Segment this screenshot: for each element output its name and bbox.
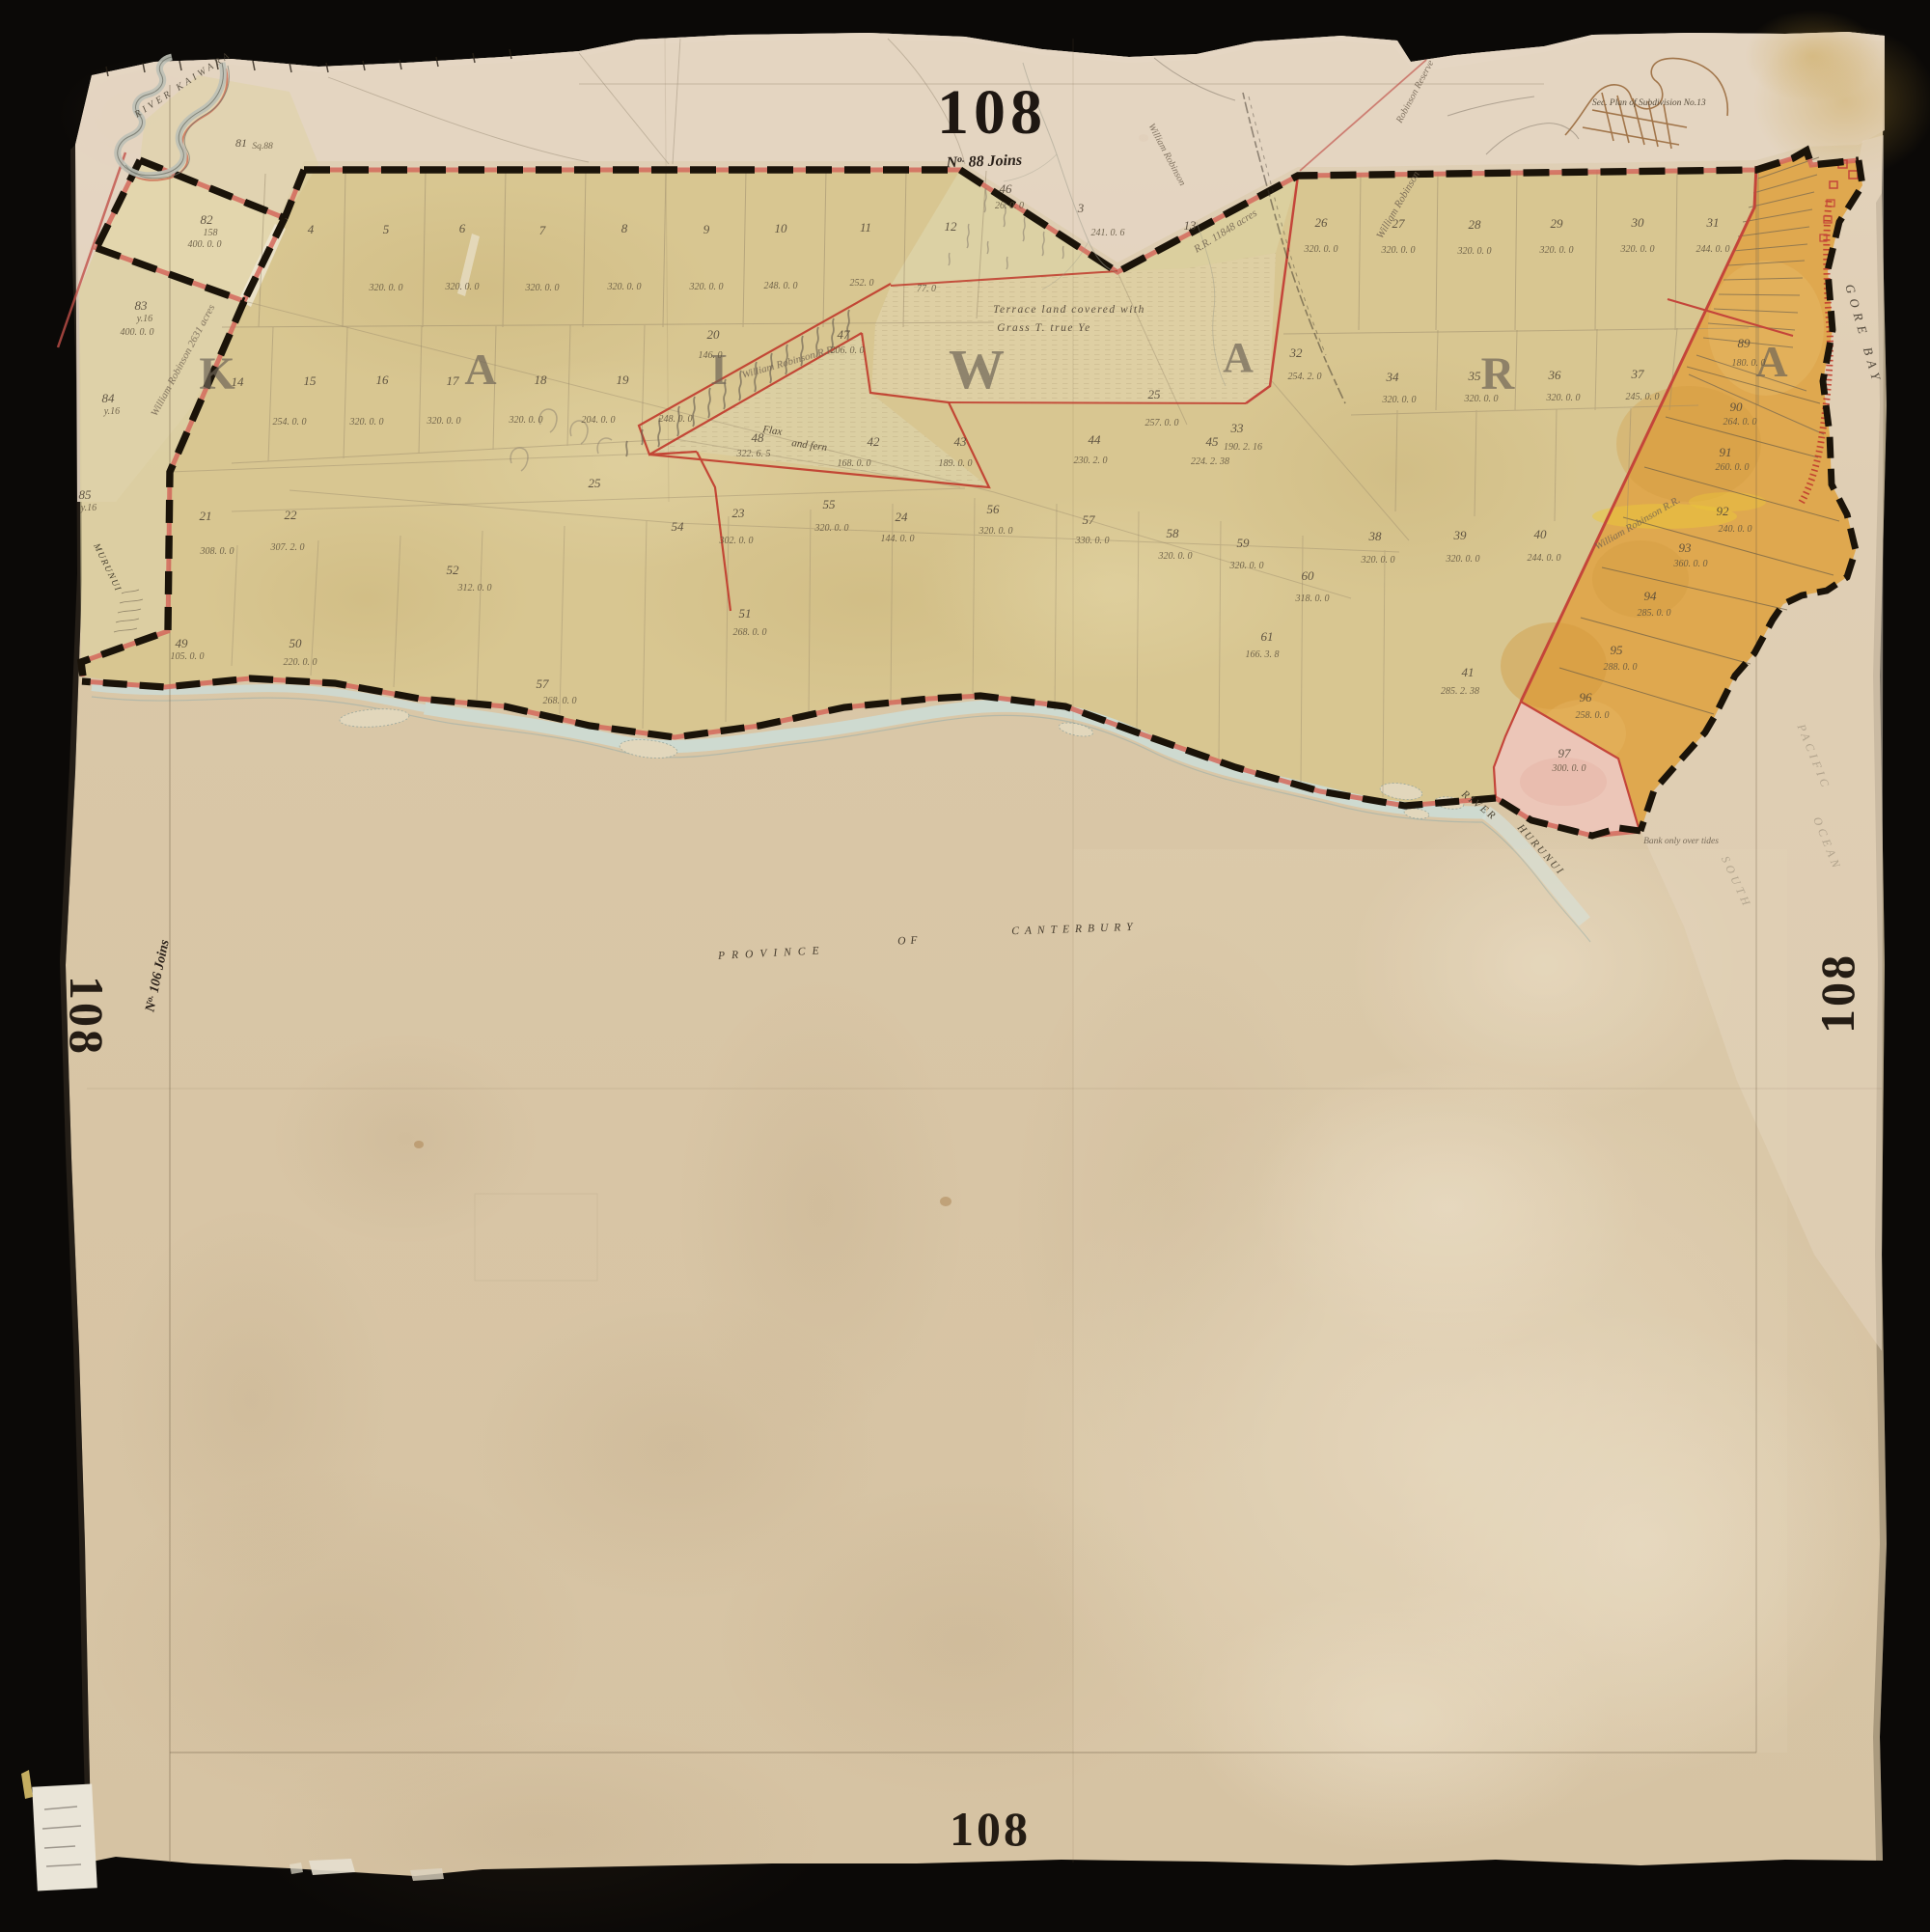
svg-text:189. 0. 0: 189. 0. 0 xyxy=(939,458,973,469)
svg-text:320. 0. 0: 320. 0. 0 xyxy=(1381,245,1416,256)
svg-text:97: 97 xyxy=(1558,746,1572,760)
svg-text:42: 42 xyxy=(868,434,881,449)
svg-text:307. 2. 0: 307. 2. 0 xyxy=(270,542,305,553)
svg-text:254. 0. 0: 254. 0. 0 xyxy=(273,417,307,428)
svg-text:82: 82 xyxy=(201,212,214,227)
svg-text:W: W xyxy=(949,338,1005,400)
svg-text:29: 29 xyxy=(1551,216,1564,231)
svg-text:33: 33 xyxy=(1230,421,1245,435)
svg-text:144. 0. 0: 144. 0. 0 xyxy=(881,534,915,544)
svg-text:A: A xyxy=(1223,334,1254,381)
svg-text:K: K xyxy=(199,348,234,400)
svg-text:8: 8 xyxy=(621,221,628,235)
svg-text:Bank only over tides: Bank only over tides xyxy=(1643,837,1719,846)
svg-text:23: 23 xyxy=(732,506,746,520)
svg-text:61: 61 xyxy=(1261,629,1274,644)
svg-text:320. 0. 0: 320. 0. 0 xyxy=(979,526,1013,537)
svg-text:322. 6. 5: 322. 6. 5 xyxy=(736,449,771,459)
svg-text:180. 0. 0: 180. 0. 0 xyxy=(1732,358,1766,369)
svg-text:20: 20 xyxy=(707,327,721,342)
svg-text:90: 90 xyxy=(1730,400,1744,414)
svg-text:268. 0. 0: 268. 0. 0 xyxy=(543,696,577,706)
svg-text:257. 0. 0: 257. 0. 0 xyxy=(1145,418,1179,428)
svg-text:56: 56 xyxy=(987,502,1001,516)
svg-text:26. 0. 0: 26. 0. 0 xyxy=(995,201,1024,211)
svg-text:244. 0. 0: 244. 0. 0 xyxy=(1696,244,1730,255)
svg-text:84: 84 xyxy=(102,391,116,405)
svg-text:47: 47 xyxy=(838,327,851,342)
svg-text:268. 0. 0: 268. 0. 0 xyxy=(733,627,767,638)
svg-text:230. 2. 0: 230. 2. 0 xyxy=(1074,455,1108,466)
svg-text:17: 17 xyxy=(447,373,460,388)
svg-text:320. 0. 0: 320. 0. 0 xyxy=(509,415,543,426)
svg-text:34: 34 xyxy=(1386,370,1400,384)
svg-text:22: 22 xyxy=(285,508,298,522)
svg-text:57: 57 xyxy=(1083,512,1096,527)
svg-text:320. 0. 0: 320. 0. 0 xyxy=(525,283,560,293)
svg-text:252. 0: 252. 0 xyxy=(850,278,874,289)
svg-text:320. 0. 0: 320. 0. 0 xyxy=(1361,555,1395,566)
svg-text:58: 58 xyxy=(1167,526,1180,540)
svg-text:77. 0: 77. 0 xyxy=(917,284,936,294)
svg-text:204. 0. 0: 204. 0. 0 xyxy=(582,415,616,426)
svg-text:37: 37 xyxy=(1631,367,1645,381)
svg-text:4: 4 xyxy=(308,222,315,236)
svg-text:40: 40 xyxy=(1534,527,1548,541)
svg-text:52: 52 xyxy=(447,563,460,577)
svg-text:16: 16 xyxy=(376,373,390,387)
svg-text:285. 2. 38: 285. 2. 38 xyxy=(1441,686,1479,697)
svg-text:105. 0. 0: 105. 0. 0 xyxy=(171,651,205,662)
svg-text:320. 0. 0: 320. 0. 0 xyxy=(1464,394,1499,404)
svg-text:320. 0. 0: 320. 0. 0 xyxy=(1620,244,1655,255)
svg-text:244. 0. 0: 244. 0. 0 xyxy=(1528,553,1561,564)
svg-text:260. 0. 0: 260. 0. 0 xyxy=(1716,462,1750,473)
svg-text:400. 0. 0: 400. 0. 0 xyxy=(121,327,154,338)
svg-text:93: 93 xyxy=(1679,540,1693,555)
svg-text:96: 96 xyxy=(1580,690,1593,704)
svg-text:57: 57 xyxy=(537,676,550,691)
svg-text:288. 0. 0: 288. 0. 0 xyxy=(1604,662,1638,673)
svg-text:320. 0. 0: 320. 0. 0 xyxy=(1539,245,1574,256)
svg-text:9: 9 xyxy=(703,222,710,236)
svg-text:Sq.88: Sq.88 xyxy=(252,142,273,152)
svg-text:166. 3. 8: 166. 3. 8 xyxy=(1246,649,1280,660)
svg-text:168. 0. 0: 168. 0. 0 xyxy=(838,458,871,469)
svg-text:320. 0. 0: 320. 0. 0 xyxy=(1382,395,1417,405)
svg-text:46: 46 xyxy=(1000,181,1013,196)
svg-text:300. 0. 0: 300. 0. 0 xyxy=(1552,763,1586,774)
svg-text:14: 14 xyxy=(232,374,245,389)
svg-text:19: 19 xyxy=(617,373,630,387)
svg-text:95: 95 xyxy=(1611,643,1624,657)
svg-text:38: 38 xyxy=(1368,529,1383,543)
svg-text:108: 108 xyxy=(950,1802,1031,1856)
svg-text:83: 83 xyxy=(135,298,149,313)
svg-text:26: 26 xyxy=(1315,215,1329,230)
svg-text:81: 81 xyxy=(235,136,247,150)
svg-text:35: 35 xyxy=(1468,369,1482,383)
svg-text:320. 0. 0: 320. 0. 0 xyxy=(1158,551,1193,562)
svg-text:32: 32 xyxy=(1289,345,1304,360)
svg-text:39: 39 xyxy=(1453,528,1468,542)
svg-text:24: 24 xyxy=(896,510,909,524)
svg-text:30: 30 xyxy=(1631,215,1645,230)
svg-text:320. 0. 0: 320. 0. 0 xyxy=(427,416,461,427)
svg-text:302. 0. 0: 302. 0. 0 xyxy=(719,536,754,546)
svg-text:320. 0. 0: 320. 0. 0 xyxy=(689,282,724,292)
svg-text:158: 158 xyxy=(204,228,218,238)
svg-text:3: 3 xyxy=(1077,201,1085,215)
svg-text:190. 2. 16: 190. 2. 16 xyxy=(1224,442,1262,453)
svg-text:92: 92 xyxy=(1717,504,1730,518)
svg-text:55: 55 xyxy=(823,497,837,511)
svg-text:27: 27 xyxy=(1392,216,1406,231)
svg-text:A: A xyxy=(464,345,496,394)
svg-text:y.16: y.16 xyxy=(80,503,96,513)
svg-text:285. 0. 0: 285. 0. 0 xyxy=(1638,608,1671,619)
svg-text:48: 48 xyxy=(752,430,765,445)
svg-text:248. 0. 0: 248. 0. 0 xyxy=(659,414,693,425)
svg-text:10: 10 xyxy=(775,221,788,235)
svg-text:36: 36 xyxy=(1548,368,1562,382)
svg-text:54: 54 xyxy=(672,519,685,534)
svg-text:312. 0. 0: 312. 0. 0 xyxy=(457,583,492,593)
svg-text:y.16: y.16 xyxy=(136,314,152,324)
svg-text:258. 0. 0: 258. 0. 0 xyxy=(1576,710,1610,721)
svg-text:No. 88 Joins: No. 88 Joins xyxy=(945,152,1022,172)
svg-text:318. 0. 0: 318. 0. 0 xyxy=(1295,593,1330,604)
svg-text:240. 0. 0: 240. 0. 0 xyxy=(1719,524,1752,535)
svg-text:y.16: y.16 xyxy=(103,406,120,417)
svg-text:12: 12 xyxy=(945,219,958,234)
svg-text:220. 0. 0: 220. 0. 0 xyxy=(284,657,317,668)
svg-text:25: 25 xyxy=(589,476,602,490)
svg-text:264. 0. 0: 264. 0. 0 xyxy=(1723,417,1757,428)
svg-text:51: 51 xyxy=(739,606,752,621)
svg-text:254. 2. 0: 254. 2. 0 xyxy=(1288,372,1322,382)
svg-text:31: 31 xyxy=(1706,215,1720,230)
svg-text:6: 6 xyxy=(459,221,466,235)
svg-text:330. 0. 0: 330. 0. 0 xyxy=(1075,536,1110,546)
svg-text:Terrace land covered with: Terrace land covered with xyxy=(993,304,1145,316)
svg-text:43: 43 xyxy=(954,434,968,449)
svg-text:7: 7 xyxy=(539,223,546,237)
svg-text:320. 0. 0: 320. 0. 0 xyxy=(445,282,480,292)
svg-text:OF: OF xyxy=(897,934,923,947)
svg-text:25: 25 xyxy=(1148,387,1162,401)
svg-text:320. 0. 0: 320. 0. 0 xyxy=(1304,244,1338,255)
svg-text:308. 0. 0: 308. 0. 0 xyxy=(200,546,234,557)
svg-text:11: 11 xyxy=(860,220,871,235)
svg-text:320. 0. 0: 320. 0. 0 xyxy=(1229,561,1264,571)
svg-text:320. 0. 0: 320. 0. 0 xyxy=(369,283,403,293)
svg-text:320. 0. 0: 320. 0. 0 xyxy=(1446,554,1480,565)
svg-text:50: 50 xyxy=(289,636,303,650)
svg-text:13: 13 xyxy=(1184,218,1198,233)
svg-text:Sec. Plan of Subdivision No.13: Sec. Plan of Subdivision No.13 xyxy=(1592,97,1706,108)
svg-text:146. 0: 146. 0 xyxy=(699,350,723,361)
svg-text:5: 5 xyxy=(383,222,390,236)
svg-text:224. 2. 38: 224. 2. 38 xyxy=(1191,456,1229,467)
svg-text:241. 0. 6: 241. 0. 6 xyxy=(1091,228,1125,238)
svg-text:320. 0. 0: 320. 0. 0 xyxy=(1546,393,1581,403)
svg-text:108: 108 xyxy=(60,976,114,1057)
svg-text:248. 0. 0: 248. 0. 0 xyxy=(764,281,798,291)
svg-text:21: 21 xyxy=(200,509,212,523)
svg-text:45: 45 xyxy=(1206,434,1220,449)
svg-text:320. 0. 0: 320. 0. 0 xyxy=(349,417,384,428)
svg-text:60: 60 xyxy=(1302,568,1315,583)
svg-text:41: 41 xyxy=(1462,665,1475,679)
svg-text:91: 91 xyxy=(1720,445,1732,459)
svg-text:18: 18 xyxy=(535,373,548,387)
svg-text:94: 94 xyxy=(1644,589,1658,603)
svg-text:245. 0. 0: 245. 0. 0 xyxy=(1626,392,1660,402)
svg-text:44: 44 xyxy=(1089,432,1102,447)
svg-text:206. 0. 0: 206. 0. 0 xyxy=(831,345,865,356)
svg-text:320. 0. 0: 320. 0. 0 xyxy=(1457,246,1492,257)
svg-text:108: 108 xyxy=(1810,952,1864,1034)
svg-text:360. 0. 0: 360. 0. 0 xyxy=(1673,559,1708,569)
svg-text:Grass T. true Ye: Grass T. true Ye xyxy=(997,322,1091,334)
svg-text:108: 108 xyxy=(937,77,1047,148)
svg-text:320. 0. 0: 320. 0. 0 xyxy=(607,282,642,292)
svg-text:400. 0. 0: 400. 0. 0 xyxy=(188,239,222,250)
svg-text:15: 15 xyxy=(304,373,317,388)
svg-text:R: R xyxy=(1481,348,1516,400)
svg-text:59: 59 xyxy=(1237,536,1251,550)
svg-text:49: 49 xyxy=(176,636,189,650)
svg-text:89: 89 xyxy=(1738,336,1751,350)
svg-text:28: 28 xyxy=(1469,217,1482,232)
svg-text:320. 0. 0: 320. 0. 0 xyxy=(814,523,849,534)
svg-text:85: 85 xyxy=(79,487,93,502)
